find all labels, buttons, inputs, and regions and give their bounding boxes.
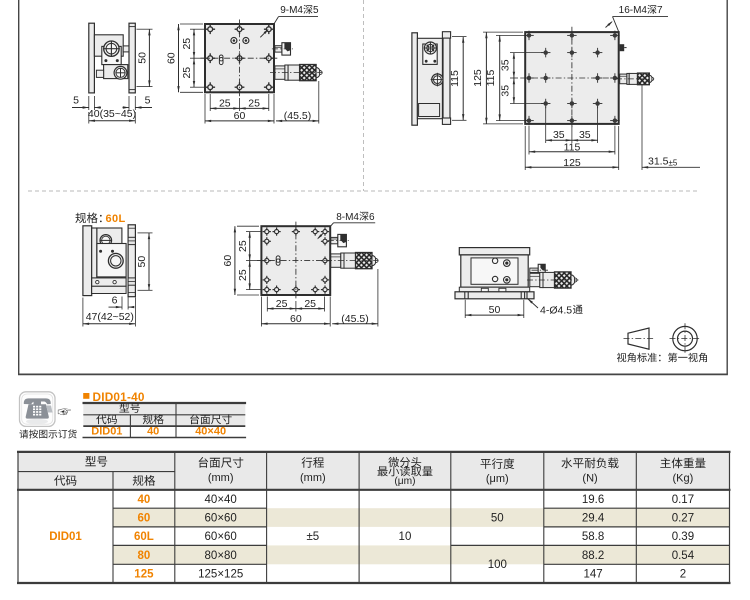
svg-text:10: 10 [399, 531, 412, 543]
svg-text:8-M4: 8-M4 [336, 212, 359, 223]
svg-text:DID01: DID01 [91, 426, 122, 438]
svg-text:25: 25 [219, 98, 231, 110]
svg-text:(45.5): (45.5) [284, 110, 311, 122]
svg-text:2: 2 [680, 569, 686, 581]
svg-text:50: 50 [491, 513, 504, 525]
svg-text:5: 5 [145, 95, 151, 107]
svg-text:25: 25 [237, 269, 249, 281]
svg-text:5: 5 [313, 5, 319, 16]
svg-text:25: 25 [181, 67, 193, 79]
svg-text:80×80: 80×80 [205, 550, 237, 562]
svg-text:25: 25 [181, 38, 193, 50]
svg-text:6: 6 [112, 294, 118, 306]
svg-text:±5: ±5 [306, 531, 319, 543]
svg-text:60: 60 [290, 313, 302, 325]
svg-text:DID01: DID01 [49, 531, 82, 543]
svg-text:60: 60 [166, 52, 178, 64]
svg-text:19.6: 19.6 [582, 494, 604, 506]
svg-text:(μm): (μm) [394, 476, 415, 487]
svg-text:60×60: 60×60 [205, 531, 237, 543]
svg-text:125: 125 [472, 69, 484, 87]
svg-text:(45.5): (45.5) [341, 313, 368, 325]
svg-text:50: 50 [137, 52, 149, 64]
svg-text:60×60: 60×60 [205, 513, 237, 525]
svg-text:125: 125 [134, 569, 154, 581]
svg-text:40: 40 [147, 426, 159, 438]
svg-text:25: 25 [237, 240, 249, 252]
svg-text:125: 125 [563, 157, 581, 169]
svg-text:(Kg): (Kg) [673, 473, 694, 485]
svg-text:40×40: 40×40 [205, 494, 237, 506]
svg-text:60: 60 [222, 255, 234, 267]
svg-text:35: 35 [579, 129, 591, 141]
svg-text:±5: ±5 [669, 158, 678, 167]
svg-text:40×40: 40×40 [195, 426, 226, 438]
svg-text:(N): (N) [582, 473, 597, 485]
svg-text:31.5: 31.5 [648, 156, 669, 168]
svg-text:58.8: 58.8 [582, 531, 604, 543]
svg-text:47(42~52): 47(42~52) [86, 311, 134, 323]
svg-text:25: 25 [248, 98, 260, 110]
svg-text:25: 25 [304, 298, 316, 310]
svg-text:50: 50 [489, 304, 501, 316]
svg-text:40(35~45): 40(35~45) [88, 108, 136, 120]
svg-text:9-M4: 9-M4 [280, 5, 303, 16]
svg-text:115: 115 [485, 69, 497, 86]
svg-text:0.54: 0.54 [672, 550, 695, 562]
svg-text:100: 100 [488, 559, 507, 571]
svg-text:40: 40 [138, 494, 151, 506]
svg-text:147: 147 [583, 569, 602, 581]
svg-text:16-M4: 16-M4 [619, 5, 648, 16]
svg-text:6: 6 [369, 212, 375, 223]
svg-text:29.4: 29.4 [582, 513, 605, 525]
svg-text:115: 115 [564, 141, 581, 153]
svg-text:35: 35 [500, 59, 512, 71]
svg-text:88.2: 88.2 [582, 550, 604, 562]
svg-text:25: 25 [276, 298, 288, 310]
svg-text:(mm): (mm) [208, 472, 234, 484]
svg-text:60L: 60L [106, 213, 126, 225]
svg-text:50: 50 [136, 256, 148, 268]
svg-text:35: 35 [500, 85, 512, 97]
svg-text:4-Ø4.5: 4-Ø4.5 [540, 304, 572, 316]
svg-text:60: 60 [234, 110, 246, 122]
svg-text:0.39: 0.39 [672, 531, 694, 543]
svg-text:115: 115 [449, 70, 461, 87]
svg-text:35: 35 [553, 129, 565, 141]
svg-text:7: 7 [657, 5, 663, 16]
svg-text:0.27: 0.27 [672, 513, 694, 525]
svg-text:60: 60 [138, 513, 151, 525]
svg-text:60L: 60L [134, 531, 154, 543]
svg-text:(mm): (mm) [300, 472, 326, 484]
svg-text:0.17: 0.17 [672, 494, 694, 506]
svg-text:5: 5 [73, 95, 79, 107]
svg-text:125×125: 125×125 [198, 569, 243, 581]
svg-text:(μm): (μm) [486, 473, 509, 485]
svg-text:80: 80 [138, 550, 151, 562]
